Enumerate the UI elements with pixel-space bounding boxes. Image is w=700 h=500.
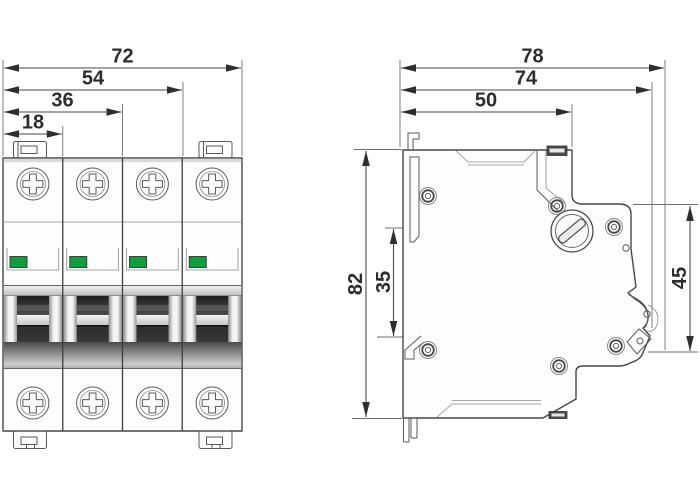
dimension-height-35: 35 xyxy=(373,229,397,336)
arrow-right-icon xyxy=(226,64,241,72)
dimension-height-82: 82 xyxy=(345,151,370,417)
terminal-opening-top-icon xyxy=(547,146,567,156)
dim-label-50: 50 xyxy=(475,90,497,112)
arrow-left-icon xyxy=(401,64,416,72)
din-clip-top-left-icon xyxy=(14,142,47,159)
din-hook-top-icon xyxy=(408,133,419,150)
dim-label-35: 35 xyxy=(373,271,395,293)
dim-label-78: 78 xyxy=(521,46,543,68)
din-tab-bottom-icon xyxy=(404,418,418,442)
side-body-outline xyxy=(403,150,650,418)
arrow-left-icon xyxy=(4,108,19,116)
dim-label-74: 74 xyxy=(515,68,538,90)
terminal-opening-bottom-icon xyxy=(549,412,567,419)
rivet-icon xyxy=(420,342,437,359)
arrow-left-icon xyxy=(4,130,19,138)
arrow-left-icon xyxy=(401,108,416,116)
arrow-up-icon xyxy=(362,151,370,166)
dimension-width-54: 54 xyxy=(4,68,182,94)
dimension-height-45: 45 xyxy=(669,206,694,351)
toggle-handle-icon xyxy=(196,296,228,342)
rivet-icon xyxy=(420,188,437,205)
din-clip-top-right-icon xyxy=(199,142,232,159)
rivet-icon xyxy=(608,338,625,355)
arrow-right-icon xyxy=(556,108,571,116)
dimension-depth-50: 50 xyxy=(401,90,571,116)
pole-indicator-icon xyxy=(189,257,206,268)
dim-label-36: 36 xyxy=(51,90,73,112)
toggle-handle-icon xyxy=(77,296,109,342)
arrow-left-icon xyxy=(401,86,416,94)
rivet-icon xyxy=(606,219,623,236)
rivet-icon xyxy=(551,358,568,375)
arrow-right-icon xyxy=(636,86,651,94)
dim-label-72: 72 xyxy=(111,46,133,68)
arrow-right-icon xyxy=(167,86,182,94)
arrow-right-icon xyxy=(107,108,122,116)
din-clip-bottom-right-icon xyxy=(199,431,232,449)
dim-label-54: 54 xyxy=(82,68,105,90)
dim-label-18: 18 xyxy=(22,112,44,134)
arrow-up-icon xyxy=(390,229,398,244)
dim-label-82: 82 xyxy=(345,273,367,295)
toggle-handle-icon xyxy=(17,296,49,342)
dimension-width-18: 18 xyxy=(4,112,62,138)
mcb-dimension-drawing: 72 54 36 18 xyxy=(0,0,700,500)
din-clip-bottom-left-icon xyxy=(14,431,47,449)
pole-indicator-icon xyxy=(70,257,87,268)
dimension-depth-74: 74 xyxy=(401,68,651,94)
arrow-down-icon xyxy=(390,321,398,336)
side-view: 78 74 50 82 35 xyxy=(345,46,698,443)
arrow-down-icon xyxy=(362,402,370,417)
toggle-handle-icon xyxy=(137,296,169,342)
dimension-width-72: 72 xyxy=(4,46,241,72)
arrow-left-icon xyxy=(4,86,19,94)
arrow-down-icon xyxy=(686,336,694,351)
arrow-right-icon xyxy=(47,130,62,138)
dim-label-45: 45 xyxy=(669,267,691,289)
pole-indicator-icon xyxy=(130,257,147,268)
arrow-right-icon xyxy=(649,64,664,72)
slotted-screw-icon xyxy=(551,210,593,252)
front-view: 72 54 36 18 xyxy=(3,46,242,449)
arrow-left-icon xyxy=(4,64,19,72)
arrow-up-icon xyxy=(686,206,694,221)
pole-indicator-icon xyxy=(10,257,27,268)
